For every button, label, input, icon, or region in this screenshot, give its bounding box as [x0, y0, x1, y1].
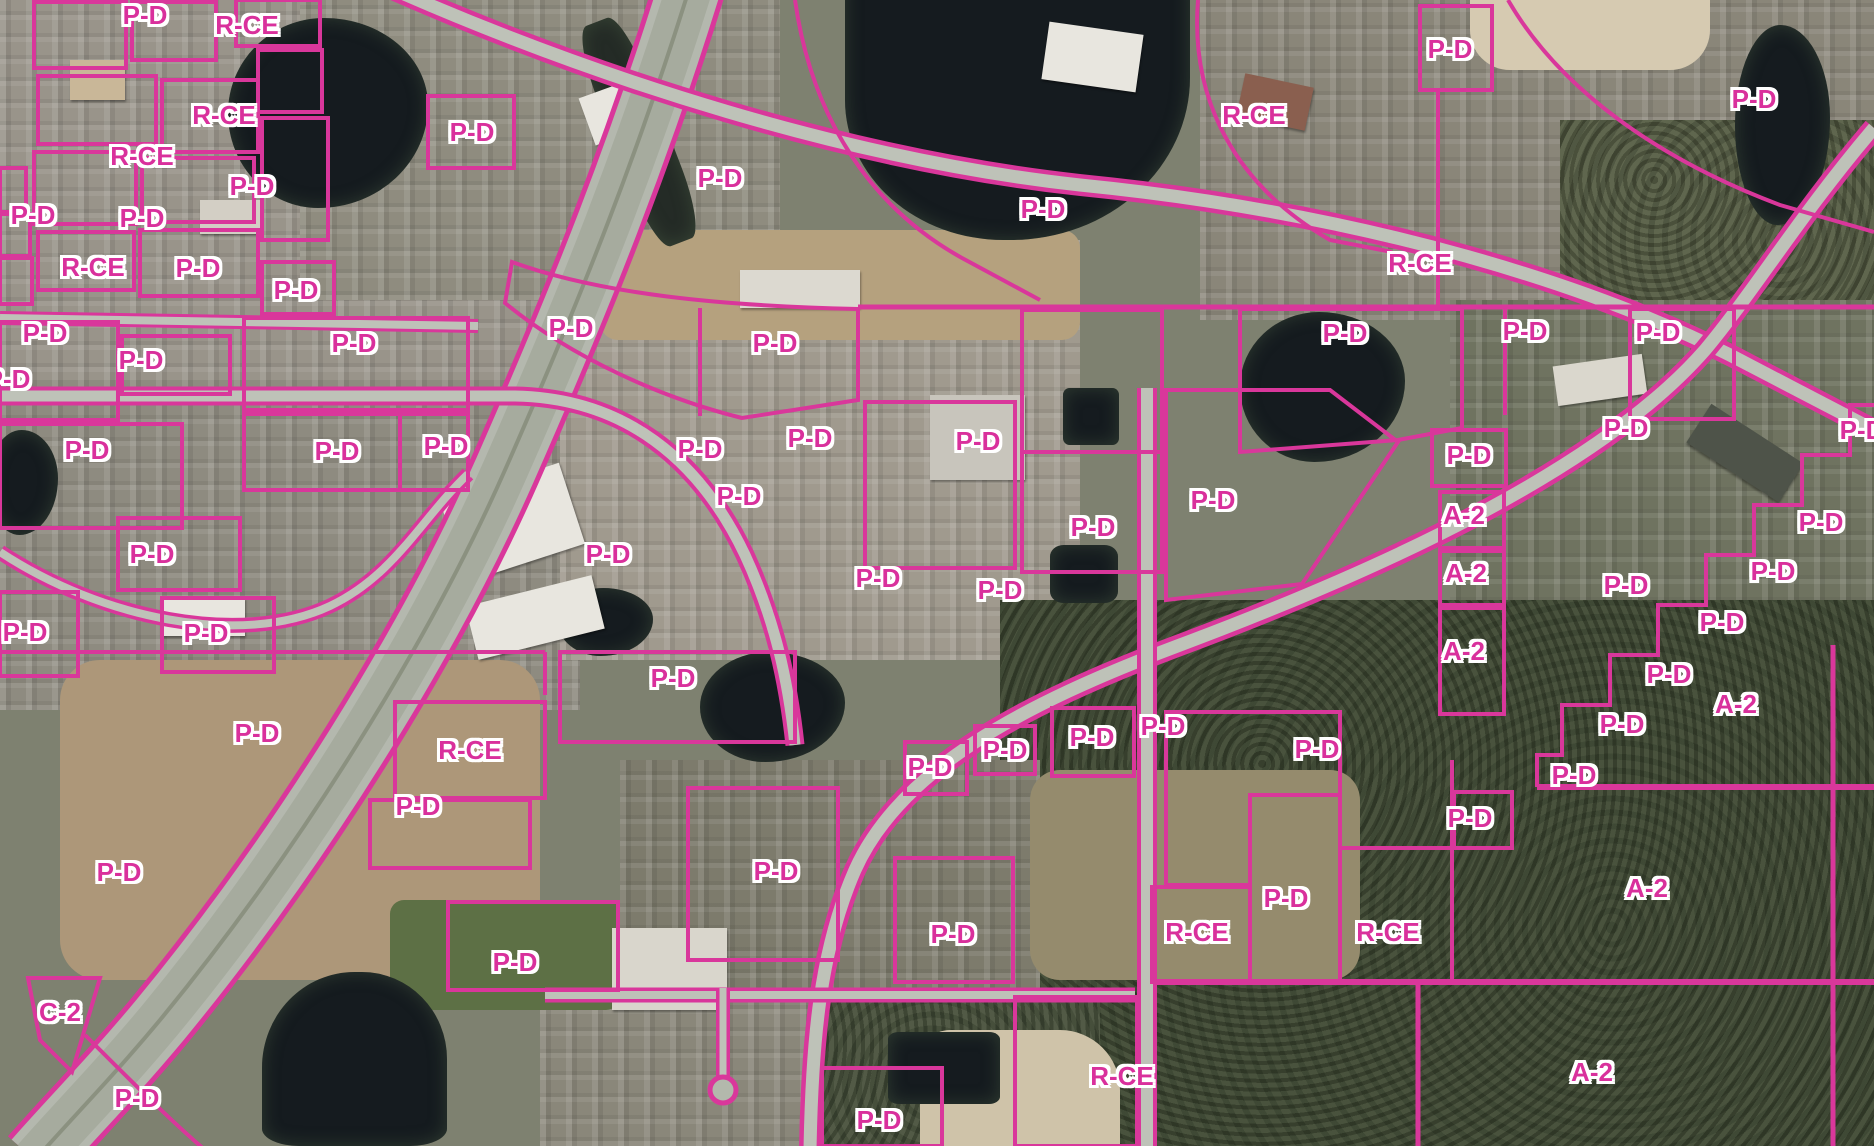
zone-label-r-ce: R-CE	[1222, 102, 1286, 128]
zone-label-p-d: P-D	[983, 737, 1028, 763]
zone-label-p-d: P-D	[493, 949, 538, 975]
zone-label-a-2: A-2	[1715, 691, 1757, 717]
zone-label-p-d: P-D	[1448, 805, 1493, 831]
zone-label-p-d: P-D	[0, 366, 30, 392]
zone-label-a-2: A-2	[1626, 875, 1668, 901]
zone-label-p-d: P-D	[549, 315, 594, 341]
zone-label-p-d: P-D	[3, 619, 48, 645]
zone-label-p-d: P-D	[235, 720, 280, 746]
zone-label-p-d: P-D	[130, 541, 175, 567]
zone-label-p-d: P-D	[119, 347, 164, 373]
zone-label-p-d: P-D	[97, 859, 142, 885]
zone-label-p-d: P-D	[1604, 415, 1649, 441]
zone-label-p-d: P-D	[1070, 724, 1115, 750]
zone-label-r-ce: R-CE	[1090, 1063, 1154, 1089]
zone-label-p-d: P-D	[1447, 442, 1492, 468]
zone-label-p-d: P-D	[857, 1107, 902, 1133]
zone-label-a-2: A-2	[1443, 502, 1485, 528]
zone-label-p-d: P-D	[1191, 487, 1236, 513]
zone-label-r-ce: R-CE	[438, 737, 502, 763]
zone-label-r-ce: R-CE	[1388, 250, 1452, 276]
zone-label-p-d: P-D	[396, 793, 441, 819]
zone-label-p-d: P-D	[1141, 713, 1186, 739]
zone-label-p-d: P-D	[332, 330, 377, 356]
zone-label-p-d: P-D	[1647, 661, 1692, 687]
zone-label-p-d: P-D	[1071, 514, 1116, 540]
zone-label-p-d: P-D	[120, 205, 165, 231]
zone-label-r-ce: R-CE	[192, 102, 256, 128]
zone-label-a-2: A-2	[1443, 638, 1485, 664]
zone-label-p-d: P-D	[754, 858, 799, 884]
zone-label-p-d: P-D	[1604, 572, 1649, 598]
zone-label-p-d: P-D	[1700, 609, 1745, 635]
zone-label-p-d: P-D	[978, 577, 1023, 603]
zone-label-p-d: P-D	[274, 277, 319, 303]
zone-label-p-d: P-D	[956, 428, 1001, 454]
zone-label-p-d: P-D	[1732, 86, 1777, 112]
zone-label-p-d: P-D	[65, 437, 110, 463]
zone-label-p-d: P-D	[1295, 736, 1340, 762]
zone-label-p-d: P-D	[23, 320, 68, 346]
zone-label-p-d: P-D	[1503, 318, 1548, 344]
zone-label-p-d: P-D	[908, 754, 953, 780]
zone-label-p-d: P-D	[698, 165, 743, 191]
zone-label-p-d: P-D	[1552, 762, 1597, 788]
zone-label-p-d: P-D	[230, 173, 275, 199]
zone-label-r-ce: R-CE	[61, 254, 125, 280]
zone-label-p-d: P-D	[176, 255, 221, 281]
zone-label-r-ce: R-CE	[110, 143, 174, 169]
zone-label-p-d: P-D	[184, 620, 229, 646]
zone-label-p-d: P-D	[1428, 36, 1473, 62]
zone-label-c-2: C-2	[39, 999, 81, 1025]
zone-label-r-ce: R-CE	[1165, 919, 1229, 945]
zone-label-p-d: P-D	[931, 921, 976, 947]
zone-label-p-d: P-D	[856, 565, 901, 591]
zone-label-p-d: P-D	[1636, 319, 1681, 345]
zone-label-p-d: P-D	[115, 1085, 160, 1111]
zone-label-a-2: A-2	[1571, 1059, 1613, 1085]
zoning-map-canvas[interactable]: P-DR-CER-CER-CEP-DP-DP-DR-CEP-DP-DP-DP-D…	[0, 0, 1874, 1146]
zone-label-p-d: P-D	[678, 436, 723, 462]
zone-label-p-d: P-D	[123, 2, 168, 28]
zone-label-r-ce: R-CE	[215, 12, 279, 38]
zone-label-p-d: P-D	[315, 438, 360, 464]
zone-label-p-d: P-D	[717, 483, 762, 509]
zone-label-p-d: P-D	[450, 119, 495, 145]
zone-label-p-d: P-D	[586, 541, 631, 567]
zone-label-p-d: P-D	[1021, 196, 1066, 222]
zone-label-p-d: P-D	[1323, 320, 1368, 346]
zone-label-p-d: P-D	[1600, 711, 1645, 737]
zone-label-p-d: P-D	[788, 425, 833, 451]
zone-label-p-d: P-D	[1751, 558, 1796, 584]
zone-label-a-2: A-2	[1445, 560, 1487, 586]
map-linework	[0, 0, 1874, 1146]
zone-label-p-d: P-D	[1264, 885, 1309, 911]
zone-label-p-d: P-D	[11, 202, 56, 228]
zone-label-p-d: P-D	[1840, 417, 1874, 443]
zone-label-r-ce: R-CE	[1356, 919, 1420, 945]
zone-label-p-d: P-D	[753, 330, 798, 356]
zone-label-p-d: P-D	[651, 665, 696, 691]
zone-label-p-d: P-D	[1799, 509, 1844, 535]
zone-label-p-d: P-D	[424, 433, 469, 459]
